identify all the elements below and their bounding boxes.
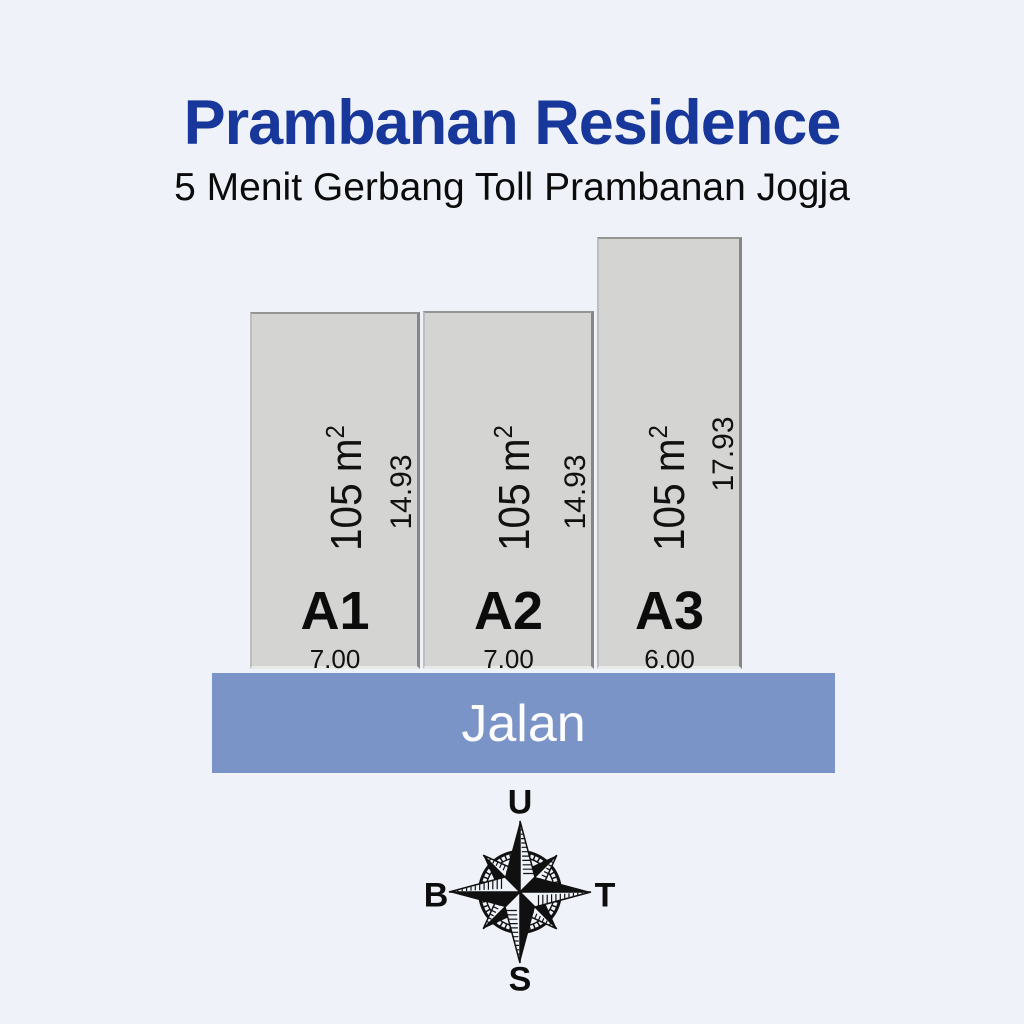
svg-text:T: T <box>595 877 616 915</box>
svg-text:S: S <box>509 961 532 999</box>
svg-text:U: U <box>508 784 533 822</box>
svg-text:B: B <box>424 877 449 915</box>
